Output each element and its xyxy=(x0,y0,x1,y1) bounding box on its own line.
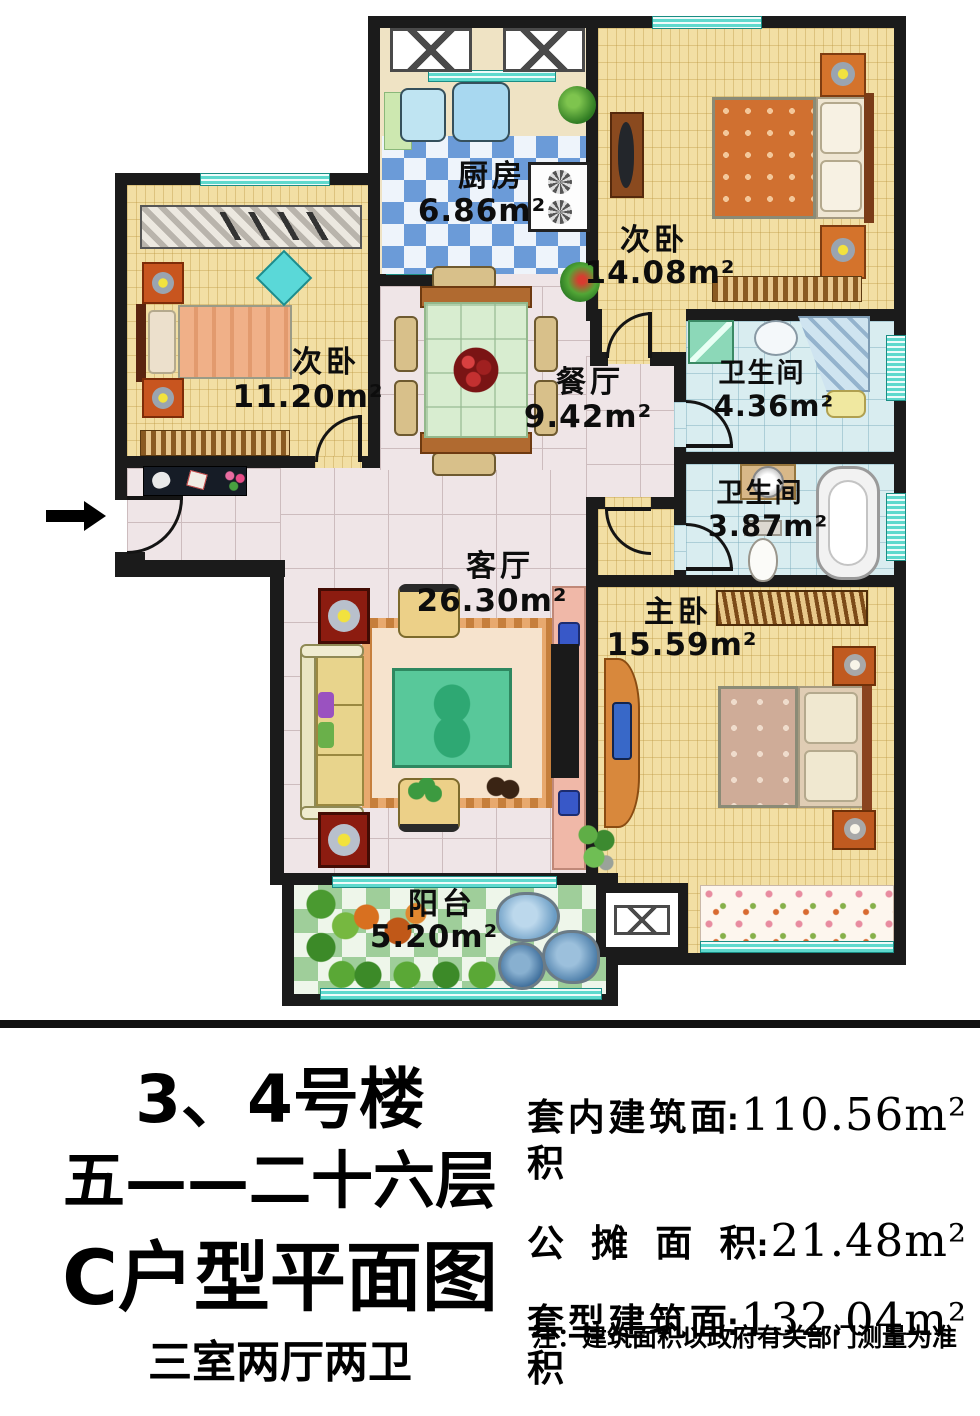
dining-area: 9.42m² xyxy=(524,402,652,433)
bed-blanket xyxy=(178,305,292,379)
bed-blanket xyxy=(712,97,816,219)
lamp xyxy=(328,824,360,856)
bay-window-cushion xyxy=(700,885,894,943)
dining-label: 餐厅 xyxy=(556,368,624,398)
ac-unit xyxy=(614,905,670,935)
tv xyxy=(612,702,632,760)
stat-colon: : xyxy=(756,1229,768,1264)
sofa-pillow xyxy=(318,722,334,748)
living-area: 26.30m² xyxy=(417,586,568,617)
pillow xyxy=(804,692,858,744)
measurement-note: 注：建筑面积以政府有关部门测量为准 xyxy=(532,1318,957,1354)
speaker xyxy=(558,790,580,816)
bath2-door-gap xyxy=(674,525,686,570)
master-bay-window xyxy=(700,941,894,953)
toilet-bowl xyxy=(748,538,778,582)
entrance-arrow-icon xyxy=(46,510,84,522)
knob xyxy=(844,818,866,840)
lamp xyxy=(152,387,174,409)
bath1-label: 卫生间 xyxy=(719,360,806,387)
pillow xyxy=(804,750,858,802)
stove-burner xyxy=(548,170,572,194)
stat-label: 套内建筑面积 xyxy=(527,1095,727,1188)
bath2-window xyxy=(886,493,906,561)
bath2-door-leaf xyxy=(686,567,733,571)
lamp xyxy=(152,272,174,294)
building-number: 3、4号楼 xyxy=(40,1046,520,1142)
stat-row-shared-area: 公摊面积:21.48m² xyxy=(527,1214,967,1267)
wall xyxy=(115,560,285,577)
wall xyxy=(115,466,127,500)
dining-chair xyxy=(394,316,418,372)
master-door-leaf xyxy=(605,507,651,511)
stat-row-inner-area: 套内建筑面积:110.56m² xyxy=(527,1088,967,1188)
living-label: 客厅 xyxy=(466,552,534,582)
plant xyxy=(558,86,596,124)
shelf-flowers xyxy=(222,468,248,494)
lamp xyxy=(831,238,855,262)
section-divider xyxy=(0,1020,980,1028)
tv xyxy=(618,122,634,188)
water-basin xyxy=(542,930,600,984)
wardrobe-icon xyxy=(220,212,330,240)
bed-headboard xyxy=(862,682,872,812)
bath1-window xyxy=(886,335,906,401)
lamp xyxy=(831,62,855,86)
wall xyxy=(650,352,686,366)
sofa-pillow xyxy=(318,692,334,718)
bed-blanket xyxy=(718,686,798,808)
kitchen-sink xyxy=(400,88,446,142)
knob xyxy=(844,654,866,676)
floorplan-page: 厨房 6.86m² 次卧 14.08m² 次卧 11.20m² 餐厅 9.42m… xyxy=(0,0,980,1416)
bedroom3-door-leaf xyxy=(358,415,362,462)
bedroom3-window xyxy=(200,173,330,186)
water-basin xyxy=(498,942,546,990)
dining-chair xyxy=(534,316,558,372)
pillow xyxy=(820,102,862,154)
entrance-arrow-head xyxy=(84,501,106,531)
bedroom2-label: 次卧 xyxy=(620,226,688,256)
bath1-area: 4.36m² xyxy=(714,392,834,421)
lamp xyxy=(328,600,360,632)
sofa-arm xyxy=(300,644,364,658)
kitchen-area: 6.86m² xyxy=(418,196,546,227)
bed-headboard xyxy=(136,304,146,382)
area-stats: 套内建筑面积:110.56m² 公摊面积:21.48m² 套型建筑面积:132.… xyxy=(527,1088,967,1416)
kitchen-flue-box xyxy=(503,28,585,72)
bedroom3-label: 次卧 xyxy=(292,348,360,378)
room-layout-summary: 三室两厅两卫 xyxy=(60,1326,500,1390)
balcony-label: 阳台 xyxy=(408,890,476,920)
kitchen-sink xyxy=(452,82,510,142)
dining-chair xyxy=(394,380,418,436)
bedroom2-door-leaf xyxy=(648,312,652,358)
tv xyxy=(551,644,579,778)
wardrobe xyxy=(716,590,868,626)
bed-headboard xyxy=(864,93,874,223)
rug-leaf-motif xyxy=(408,778,442,804)
bath2-area: 3.87m² xyxy=(708,512,828,541)
table-flowers xyxy=(450,344,502,396)
stove-burner xyxy=(548,200,572,224)
master-label: 主卧 xyxy=(644,598,712,628)
balcony-shrubs xyxy=(350,952,500,998)
master-area: 15.59m² xyxy=(607,630,758,661)
balcony-area: 5.20m² xyxy=(370,922,498,953)
entry-door-gap xyxy=(115,500,127,552)
bedroom2-window xyxy=(652,16,762,29)
bedroom3-area: 11.20m² xyxy=(233,382,384,413)
rug xyxy=(140,430,290,456)
coffee-table xyxy=(392,668,512,768)
wall xyxy=(270,560,284,885)
bath1-door-gap xyxy=(674,402,686,447)
bedroom2-area: 14.08m² xyxy=(585,258,736,289)
kitchen-label: 厨房 xyxy=(458,162,526,192)
rug-leaf-motif xyxy=(486,774,520,802)
bath1-door-leaf xyxy=(686,444,733,448)
stat-colon: : xyxy=(727,1103,739,1138)
washbasin xyxy=(754,320,798,356)
entry-door-leaf xyxy=(127,496,183,500)
bath2-label: 卫生间 xyxy=(717,480,804,507)
floor-range: 五——二十六层 xyxy=(20,1130,540,1220)
pillow xyxy=(820,160,862,212)
stat-value: 110.56m² xyxy=(741,1088,967,1141)
unit-plan-title: C户型平面图 xyxy=(10,1216,550,1326)
stat-label: 公摊面积 xyxy=(527,1221,756,1267)
pillow xyxy=(148,310,176,374)
stat-value: 21.48m² xyxy=(770,1214,967,1267)
dining-chair xyxy=(432,452,496,476)
bathtub-inner xyxy=(828,480,868,566)
kitchen-flue-box xyxy=(390,28,472,72)
sofa-back xyxy=(300,650,316,812)
